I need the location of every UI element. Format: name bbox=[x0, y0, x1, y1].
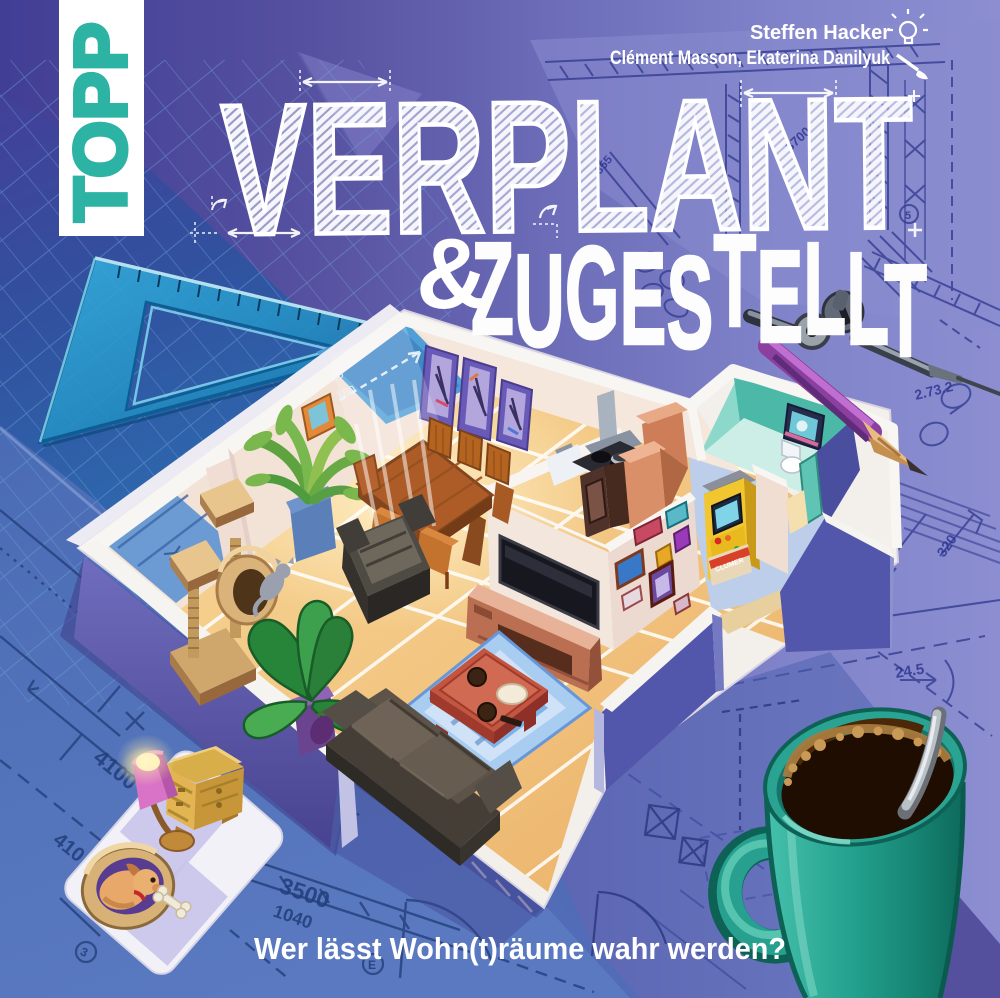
svg-text:ZUGESTELLT: ZUGESTELLT bbox=[471, 207, 927, 384]
svg-text:Clément Masson, Ekaterina Dani: Clément Masson, Ekaterina Danilyuk bbox=[610, 48, 890, 69]
svg-text:TOPP: TOPP bbox=[59, 22, 142, 222]
svg-text:Wer lässt Wohn(t)räume wahr we: Wer lässt Wohn(t)räume wahr werden? bbox=[254, 931, 786, 966]
svg-text:Steffen Hacker: Steffen Hacker bbox=[750, 22, 890, 44]
